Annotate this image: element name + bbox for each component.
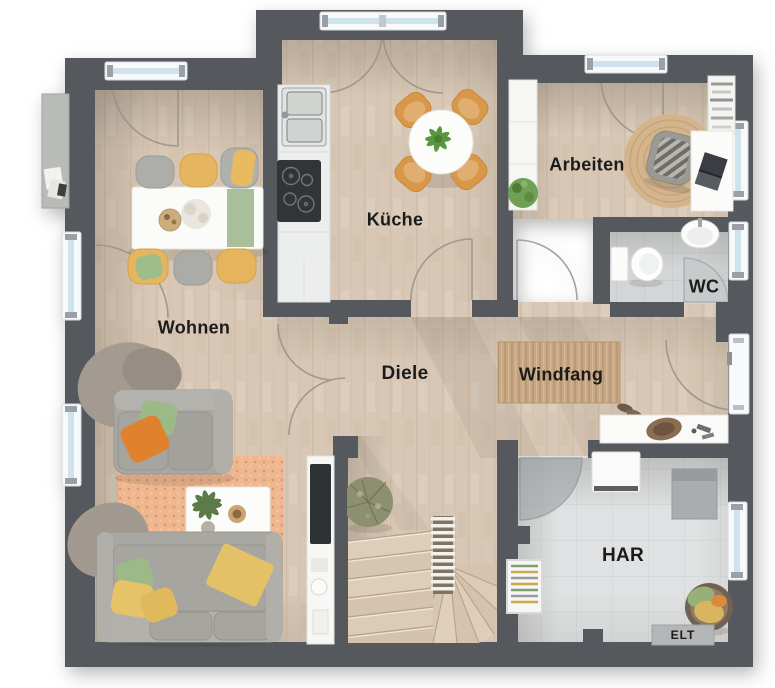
laundry <box>711 595 727 607</box>
building <box>42 10 753 667</box>
tv-lowboard <box>307 456 334 644</box>
tv <box>310 464 331 544</box>
washing-machine <box>592 452 640 492</box>
wall-segment <box>333 436 358 458</box>
window <box>105 62 187 80</box>
dining-table <box>132 187 263 249</box>
faucet <box>282 112 289 119</box>
entry-sideboard <box>600 414 728 443</box>
window <box>62 232 81 320</box>
floorplan-graphic <box>0 0 775 688</box>
stair-flight <box>348 531 433 655</box>
wall-segment <box>472 300 518 317</box>
window <box>62 404 81 486</box>
kitchen-counter <box>277 85 330 302</box>
window <box>728 502 747 580</box>
window <box>729 222 748 280</box>
elt-box <box>652 625 714 645</box>
flower-bouquet <box>181 199 211 229</box>
toilet <box>611 247 663 287</box>
desk <box>691 131 733 211</box>
sink-bowl <box>287 119 322 142</box>
wall-segment <box>583 629 603 645</box>
chair <box>180 154 217 187</box>
stack <box>313 610 328 634</box>
table-runner <box>227 189 254 247</box>
wall-segment <box>514 526 530 544</box>
tap <box>698 218 702 227</box>
wall-segment <box>263 90 278 302</box>
drying-rack <box>507 560 542 613</box>
bookshelf <box>708 76 735 134</box>
window <box>320 12 446 30</box>
wall-segment <box>333 436 348 642</box>
wall-segment <box>329 300 348 324</box>
chair <box>174 251 212 285</box>
sink-bowl <box>287 92 322 115</box>
chair <box>136 156 174 188</box>
arbeiten-door-arc <box>517 240 577 300</box>
doormat <box>498 342 620 403</box>
chair <box>217 249 256 283</box>
bowl <box>159 209 181 231</box>
cooktop <box>277 160 321 222</box>
dish <box>311 579 327 595</box>
window <box>585 55 667 73</box>
plant <box>508 178 538 208</box>
books <box>311 558 328 572</box>
wall-segment <box>610 302 684 317</box>
wall-segment <box>593 232 610 304</box>
stair-railing <box>431 516 455 594</box>
sideboard <box>42 94 69 208</box>
utility-unit <box>672 469 717 519</box>
floor-plan: Wohnen Küche Arbeiten WC Diele Windfang … <box>0 0 775 688</box>
entrance-door <box>727 334 749 414</box>
